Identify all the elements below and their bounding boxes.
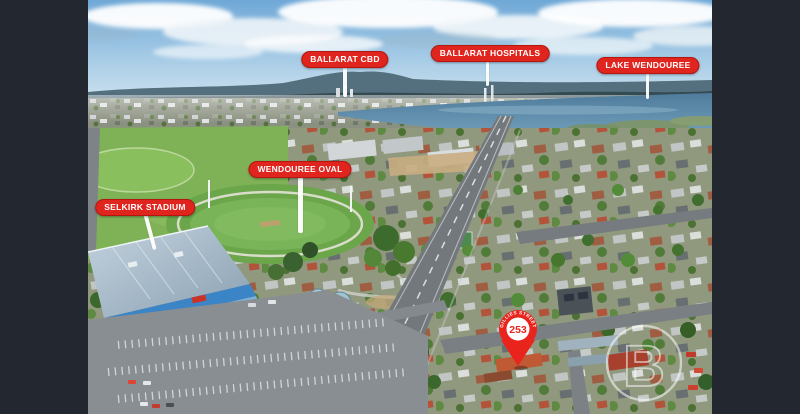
label-wendouree-oval: WENDOUREE OVAL bbox=[248, 161, 351, 178]
label-ballarat-cbd-text: BALLARAT CBD bbox=[310, 54, 379, 64]
label-wendouree-oval-text: WENDOUREE OVAL bbox=[257, 164, 342, 174]
label-ballarat-hospitals: BALLARAT HOSPITALS bbox=[431, 45, 550, 62]
label-ballarat-cbd: BALLARAT CBD bbox=[301, 51, 388, 68]
label-lake-wendouree: LAKE WENDOUREE bbox=[596, 57, 699, 74]
aerial-listing-image: BALLARAT CBD BALLARAT HOSPITALS LAKE WEN… bbox=[0, 0, 800, 414]
property-pin-icon: GILLIES STREET 253 bbox=[487, 307, 549, 373]
agency-watermark-letter: B bbox=[623, 334, 665, 399]
leader-line-ballarat-hospitals bbox=[486, 60, 489, 86]
leader-line-lake-wendouree bbox=[646, 72, 649, 99]
letterbox-right bbox=[712, 0, 800, 414]
property-number: 253 bbox=[509, 324, 527, 336]
agency-watermark: B bbox=[602, 321, 686, 405]
aerial-photo: BALLARAT CBD BALLARAT HOSPITALS LAKE WEN… bbox=[88, 0, 712, 414]
letterbox-left bbox=[0, 0, 88, 414]
label-ballarat-hospitals-text: BALLARAT HOSPITALS bbox=[440, 48, 541, 58]
leader-line-ballarat-cbd bbox=[343, 66, 347, 97]
label-selkirk-stadium: SELKIRK STADIUM bbox=[95, 199, 195, 216]
agency-watermark-icon: B bbox=[602, 321, 686, 405]
label-lake-wendouree-text: LAKE WENDOUREE bbox=[605, 60, 690, 70]
leader-line-wendouree-oval bbox=[298, 176, 303, 233]
label-selkirk-stadium-text: SELKIRK STADIUM bbox=[104, 202, 186, 212]
property-pin: GILLIES STREET 253 bbox=[487, 307, 549, 373]
